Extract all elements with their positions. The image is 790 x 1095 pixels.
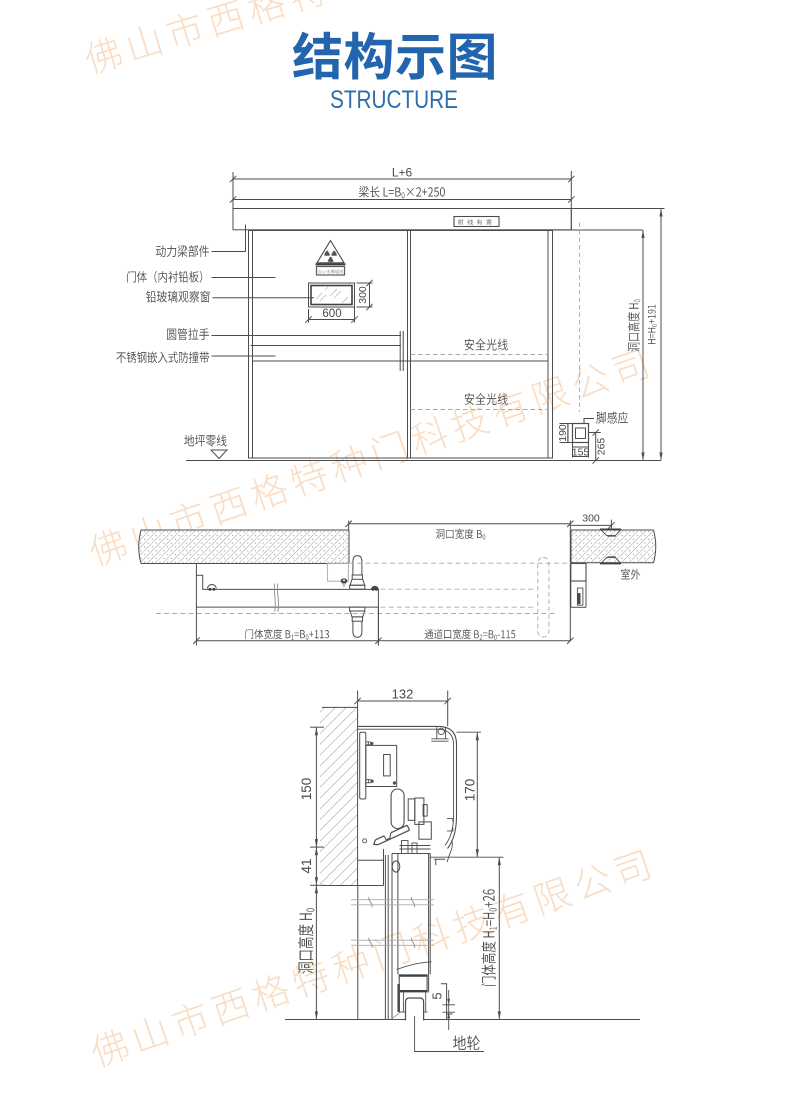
svg-text:265: 265 <box>595 438 607 456</box>
svg-text:STRUCTURE: STRUCTURE <box>330 86 458 114</box>
svg-text:300: 300 <box>357 286 369 304</box>
svg-text:L+6: L+6 <box>392 166 413 180</box>
svg-text:132: 132 <box>392 687 414 702</box>
svg-text:155: 155 <box>572 447 590 459</box>
svg-text:170: 170 <box>463 779 478 802</box>
svg-text:150: 150 <box>299 778 314 801</box>
svg-text:5: 5 <box>430 992 445 999</box>
svg-text:41: 41 <box>299 858 314 873</box>
svg-text:300: 300 <box>582 513 600 525</box>
svg-text:600: 600 <box>322 308 341 320</box>
svg-text:190: 190 <box>557 424 569 442</box>
